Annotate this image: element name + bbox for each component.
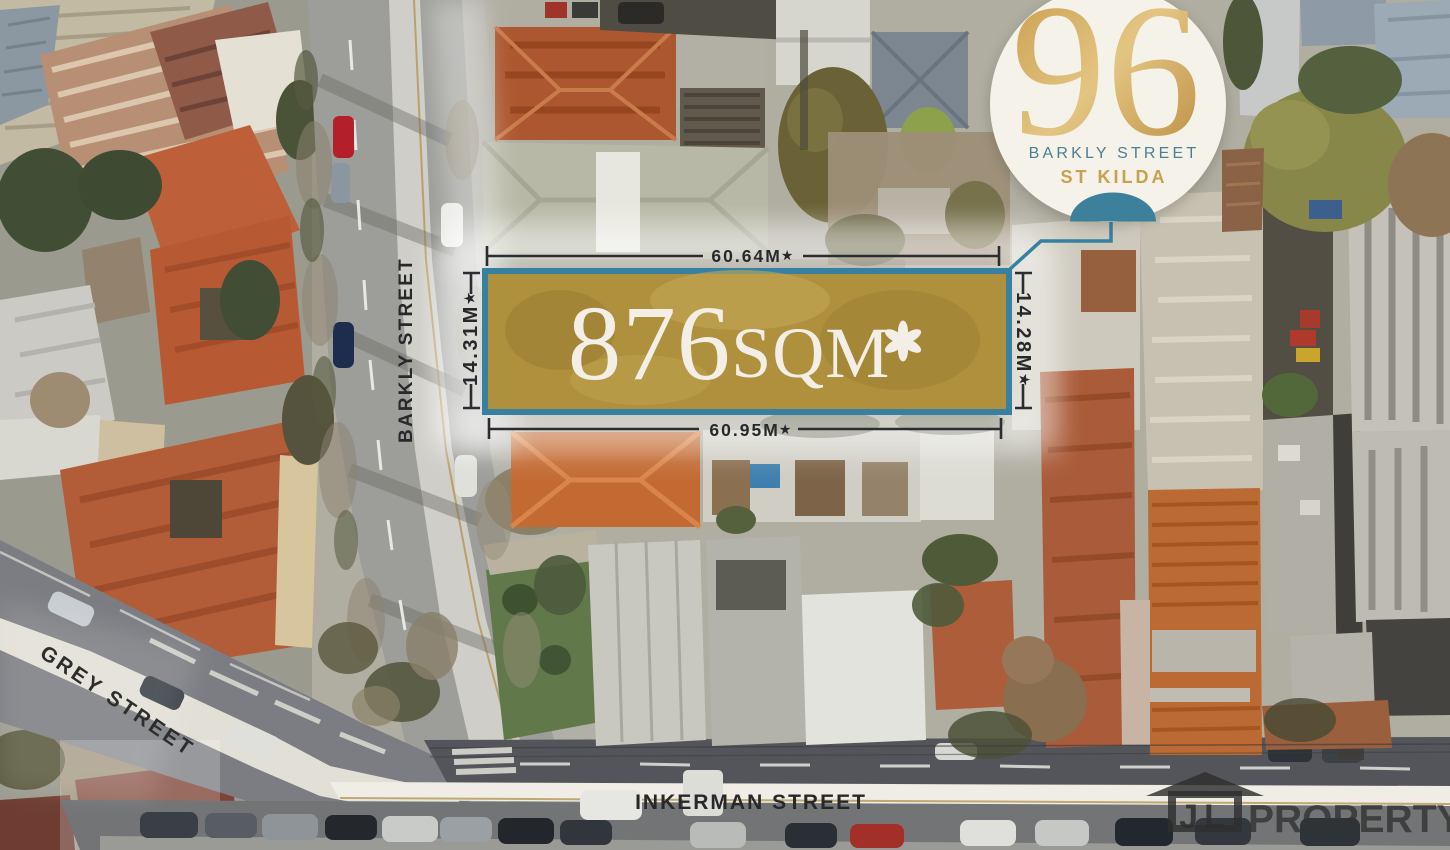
svg-text:BARKLY STREET: BARKLY STREET	[396, 257, 417, 443]
svg-text:14.28M★: 14.28M★	[1012, 292, 1034, 388]
svg-text:ST KILDA: ST KILDA	[1061, 167, 1168, 187]
svg-text:BARKLY STREET: BARKLY STREET	[1029, 145, 1200, 162]
svg-text:PROPERTY: PROPERTY	[1248, 798, 1450, 841]
svg-text:INKERMAN STREET: INKERMAN STREET	[635, 791, 867, 814]
svg-text:JL: JL	[1179, 798, 1231, 836]
svg-text:14.31M★: 14.31M★	[460, 290, 482, 386]
